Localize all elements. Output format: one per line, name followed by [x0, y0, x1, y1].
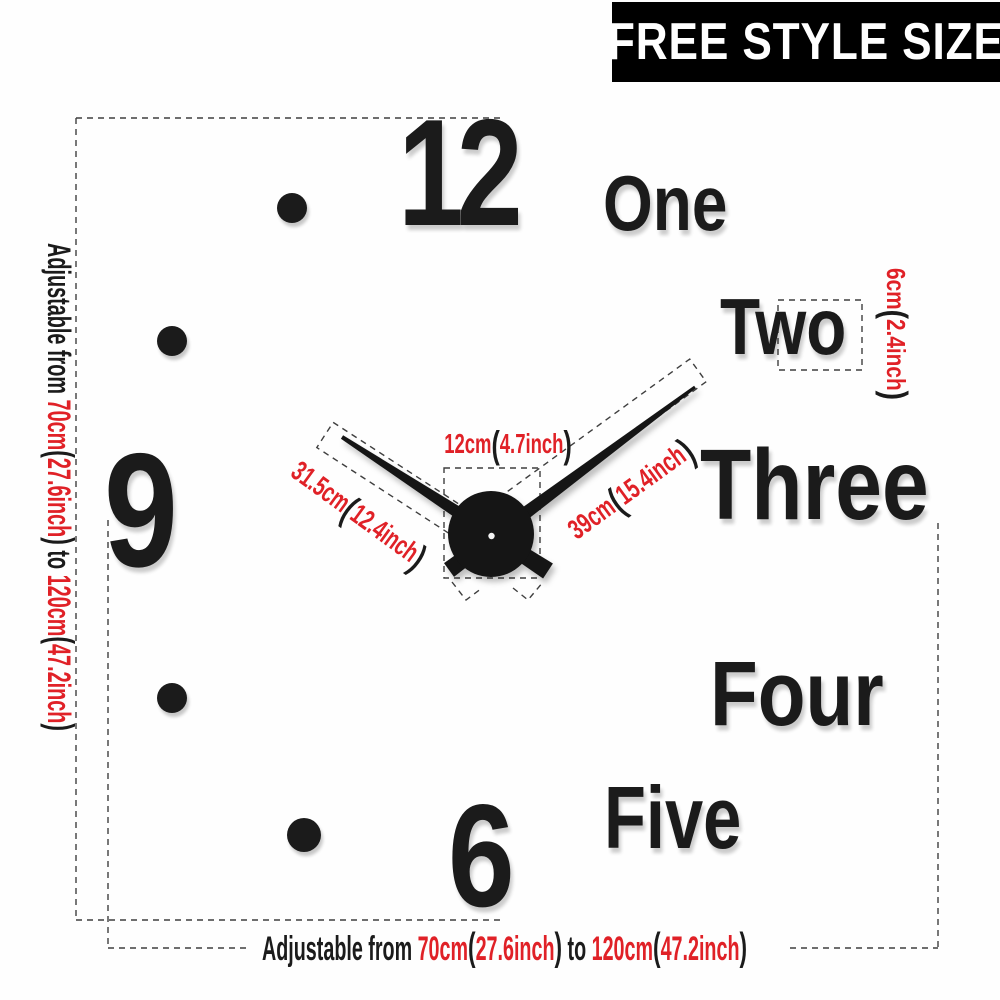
- clock-dot: [157, 326, 187, 356]
- free-style-size-banner: FREE STYLE SIZE: [612, 2, 1000, 82]
- text-segment: ): [40, 537, 81, 545]
- text-segment: 70cm: [41, 400, 77, 451]
- text-segment: (: [491, 425, 499, 467]
- text-segment: 12cm: [444, 428, 491, 459]
- left-size-range-label: Adjustable from 70cm(27.6inch) to 120cm(…: [40, 243, 80, 731]
- text-segment: Adjustable from: [262, 930, 418, 968]
- text-segment: 4.7inch: [500, 428, 564, 459]
- center-spindle-hole: [488, 533, 494, 539]
- measurement-word-height: 6cm(2.4inch): [880, 268, 910, 400]
- text-segment: 6cm: [881, 268, 911, 310]
- clock-numeral-6: 6: [448, 783, 515, 929]
- text-segment: 2.4inch: [881, 319, 911, 391]
- measurement-center-width: 12cm(4.7inch): [444, 428, 550, 460]
- foot-guide-left: [452, 582, 482, 600]
- text-segment: (: [40, 450, 81, 458]
- clock-numeral-9: 9: [104, 430, 178, 592]
- clock-word-two: Two: [720, 287, 846, 367]
- clock-word-one: One: [603, 164, 727, 242]
- clock-word-five: Five: [604, 774, 741, 862]
- text-segment: 120cm: [592, 930, 653, 968]
- text-segment: 27.6inch: [476, 930, 555, 968]
- text-segment: (: [468, 926, 476, 969]
- text-segment: ): [875, 391, 914, 400]
- clock-word-three: Three: [700, 435, 929, 535]
- text-segment: ): [740, 926, 748, 969]
- clock-dot: [287, 818, 321, 852]
- foot-guide-right: [513, 582, 543, 600]
- text-segment: ): [40, 723, 81, 731]
- bottom-size-range-label: Adjustable from 70cm(27.6inch) to 120cm(…: [262, 926, 747, 969]
- text-segment: (: [875, 310, 914, 319]
- clock-numeral-12: 12: [398, 97, 516, 249]
- text-segment: to: [41, 545, 77, 575]
- text-segment: 70cm: [418, 930, 468, 968]
- clock-dot: [277, 193, 307, 223]
- text-segment: 120cm: [41, 575, 77, 637]
- clock-dot: [157, 683, 187, 713]
- text-segment: 27.6inch: [41, 458, 77, 537]
- text-segment: to: [562, 930, 592, 968]
- clock-word-four: Four: [710, 648, 884, 740]
- text-segment: Adjustable from: [41, 243, 77, 400]
- text-segment: 47.2inch: [41, 644, 77, 723]
- text-segment: (: [653, 926, 661, 969]
- text-segment: (: [40, 636, 81, 644]
- text-segment: ): [563, 425, 571, 467]
- product-size-diagram: FREE STYLE SIZE 12 9 6 One Two Three Fou…: [0, 0, 1000, 1000]
- text-segment: 47.2inch: [661, 930, 740, 968]
- banner-label: FREE STYLE SIZE: [608, 12, 1000, 72]
